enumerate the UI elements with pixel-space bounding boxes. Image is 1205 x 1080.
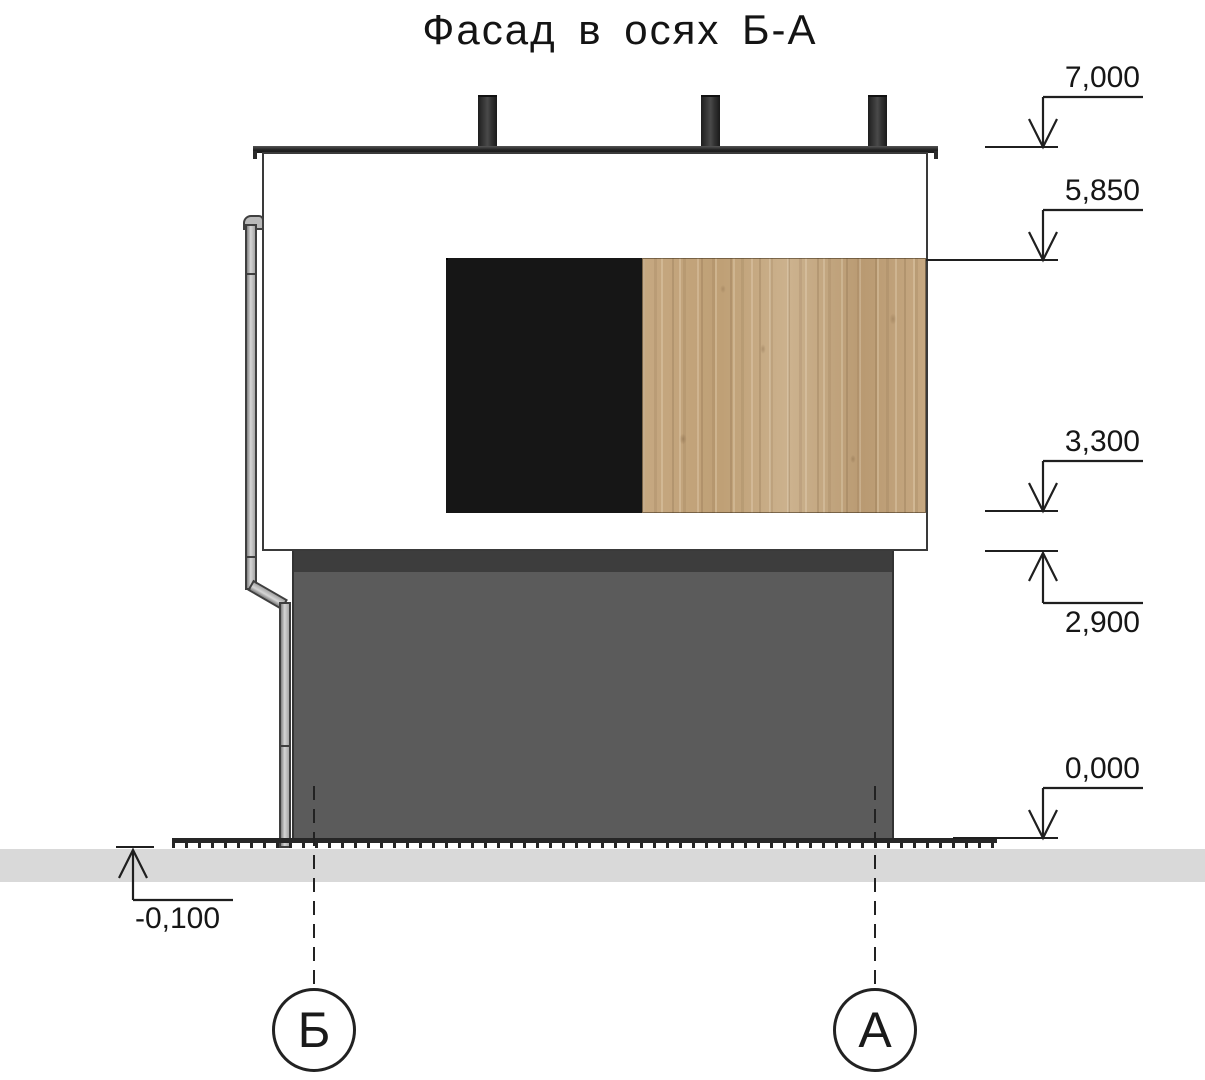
elevation-value-parapet: 7,000 xyxy=(1030,63,1140,93)
elevation-marker-window-head xyxy=(1023,208,1145,262)
axis-label-b: Б xyxy=(298,1001,331,1059)
facade-drawing: Фасад в осях Б-А Б А xyxy=(0,0,1205,1080)
axis-bubble-b: Б xyxy=(272,988,356,1072)
axis-bubble-a: А xyxy=(833,988,917,1072)
downspout-upper-pipe xyxy=(245,224,257,590)
elevation-marker-slab-top xyxy=(1023,459,1145,513)
axis-line-b xyxy=(313,786,315,988)
glass-pane xyxy=(446,258,448,260)
elevation-value-ground-floor: 0,000 xyxy=(1030,754,1140,784)
downspout-joint xyxy=(245,273,257,275)
axis-label-a: А xyxy=(858,1001,891,1059)
elevation-value-slab-top: 3,300 xyxy=(1030,427,1140,457)
wood-cladding-panel xyxy=(642,258,926,513)
roof-post xyxy=(868,95,887,148)
parapet-drip-edge xyxy=(934,151,938,159)
elevation-marker-floor1-ceiling xyxy=(1023,551,1145,605)
elevation-value-floor1-ceiling: 2,900 xyxy=(1030,608,1140,638)
elevation-marker-parapet xyxy=(1023,95,1145,149)
panoramic-window xyxy=(446,258,642,513)
downspout-joint xyxy=(245,556,257,558)
elevation-value-window-head: 5,850 xyxy=(1030,176,1140,206)
roof-post xyxy=(701,95,720,148)
elevation-marker-ground-floor xyxy=(1023,786,1145,840)
axis-line-a xyxy=(874,786,876,988)
elevation-value-grade: -0,100 xyxy=(105,904,250,934)
elevation-marker-grade xyxy=(113,848,235,902)
floor-slab-band xyxy=(294,551,892,572)
downspout-joint xyxy=(279,745,291,747)
roof-post xyxy=(478,95,497,148)
downspout-lower-pipe xyxy=(279,602,291,848)
parapet-drip-edge xyxy=(253,151,257,159)
lower-floor-wall xyxy=(292,551,894,840)
drawing-title: Фасад в осях Б-А xyxy=(300,6,940,54)
